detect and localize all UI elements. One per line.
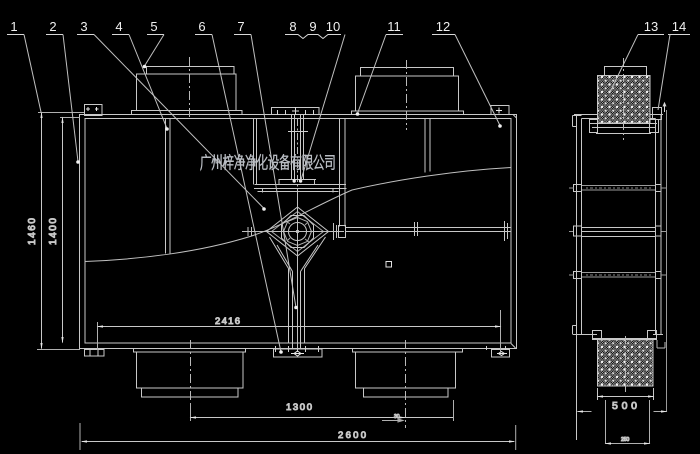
svg-text:12: 12 <box>436 19 450 34</box>
svg-text:1: 1 <box>10 19 17 34</box>
svg-text:4: 4 <box>115 19 122 34</box>
svg-text:500: 500 <box>612 400 637 412</box>
svg-text:9: 9 <box>309 19 316 34</box>
svg-text:14: 14 <box>672 19 686 34</box>
svg-text:2416: 2416 <box>215 316 240 327</box>
svg-text:8: 8 <box>289 19 296 34</box>
svg-text:1400: 1400 <box>48 218 59 245</box>
svg-text:2: 2 <box>49 19 56 34</box>
svg-text:10: 10 <box>326 19 340 34</box>
svg-text:13: 13 <box>644 19 658 34</box>
svg-text:3: 3 <box>80 19 87 34</box>
svg-text:1300: 1300 <box>286 402 312 413</box>
svg-text:6: 6 <box>198 19 205 34</box>
svg-text:11: 11 <box>387 19 401 34</box>
svg-text:7: 7 <box>237 19 244 34</box>
svg-text:5: 5 <box>150 19 157 34</box>
svg-text:30: 30 <box>394 414 400 420</box>
svg-text:250: 250 <box>621 437 630 443</box>
svg-text:1460: 1460 <box>27 218 38 245</box>
